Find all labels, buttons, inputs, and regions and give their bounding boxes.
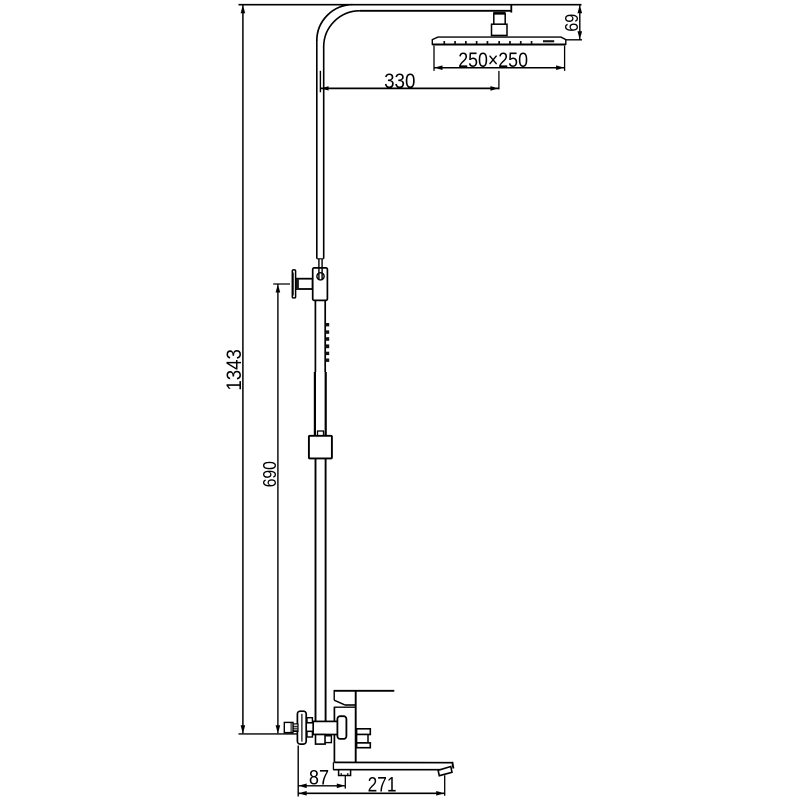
svg-text:330: 330 bbox=[384, 69, 415, 93]
svg-text:1343: 1343 bbox=[222, 349, 246, 391]
svg-text:87: 87 bbox=[309, 766, 329, 790]
svg-text:690: 690 bbox=[260, 461, 280, 487]
svg-text:250×250: 250×250 bbox=[458, 48, 528, 72]
svg-text:69: 69 bbox=[562, 14, 582, 32]
svg-text:271: 271 bbox=[368, 772, 397, 796]
